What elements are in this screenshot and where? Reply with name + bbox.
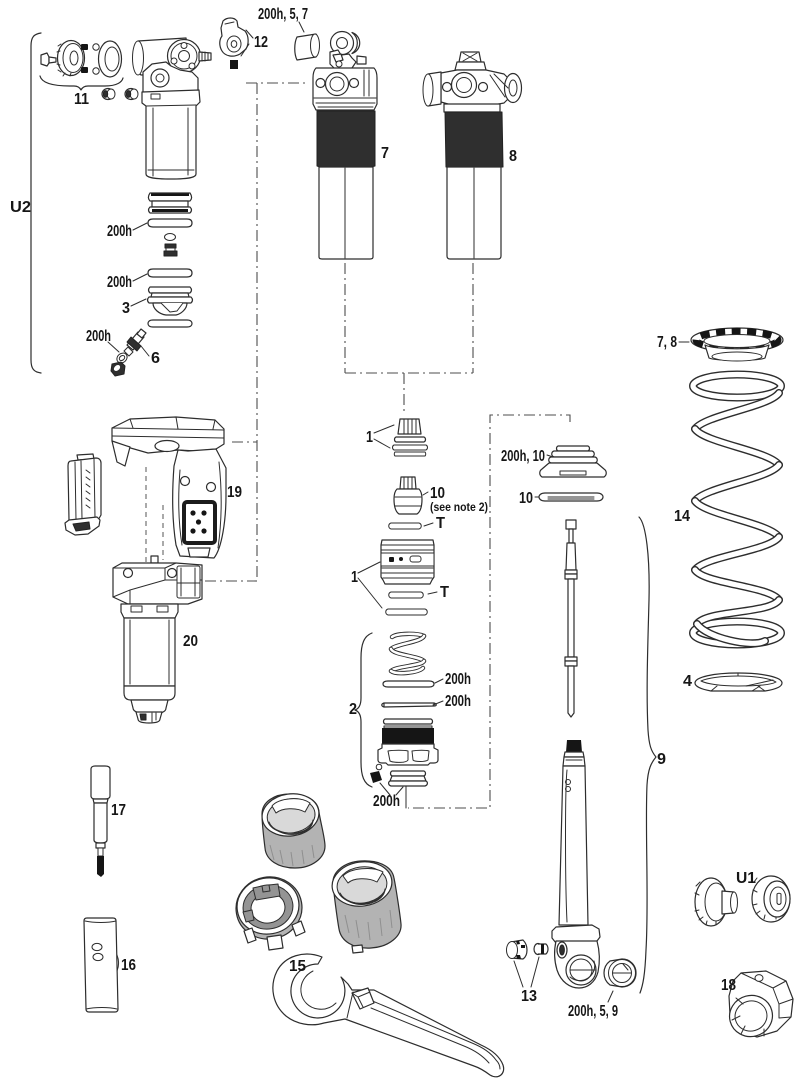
svg-text:10: 10 (519, 490, 533, 507)
svg-text:200h: 200h (107, 223, 132, 240)
svg-text:16: 16 (121, 957, 136, 974)
svg-text:200h: 200h (107, 274, 132, 291)
svg-text:7, 8: 7, 8 (657, 334, 677, 351)
svg-text:200h: 200h (86, 328, 111, 345)
svg-text:3: 3 (122, 300, 130, 317)
svg-text:(see note 2): (see note 2) (430, 500, 488, 514)
svg-text:1: 1 (366, 429, 373, 446)
svg-text:6: 6 (151, 350, 160, 367)
svg-text:12: 12 (254, 34, 268, 51)
svg-text:11: 11 (74, 91, 89, 108)
svg-text:19: 19 (227, 484, 242, 501)
svg-text:T: T (436, 515, 446, 532)
svg-text:2: 2 (349, 701, 357, 718)
svg-text:200h: 200h (445, 693, 471, 710)
svg-text:200h: 200h (373, 793, 400, 810)
svg-text:1: 1 (351, 569, 358, 586)
svg-text:U2: U2 (10, 199, 31, 216)
svg-text:15: 15 (289, 958, 306, 975)
svg-text:8: 8 (509, 148, 517, 165)
svg-text:T: T (440, 584, 450, 601)
svg-text:200h, 10: 200h, 10 (501, 448, 545, 465)
svg-text:4: 4 (683, 673, 692, 690)
svg-text:14: 14 (674, 508, 690, 525)
svg-text:7: 7 (381, 145, 389, 162)
svg-text:18: 18 (721, 977, 736, 994)
svg-text:200h, 5, 9: 200h, 5, 9 (568, 1003, 618, 1020)
svg-text:17: 17 (111, 802, 126, 819)
svg-text:13: 13 (521, 988, 537, 1005)
svg-text:20: 20 (183, 633, 198, 650)
svg-text:200h: 200h (445, 671, 471, 688)
svg-text:200h, 5, 7: 200h, 5, 7 (258, 6, 308, 23)
svg-text:9: 9 (657, 751, 666, 768)
svg-text:U1: U1 (736, 870, 756, 887)
